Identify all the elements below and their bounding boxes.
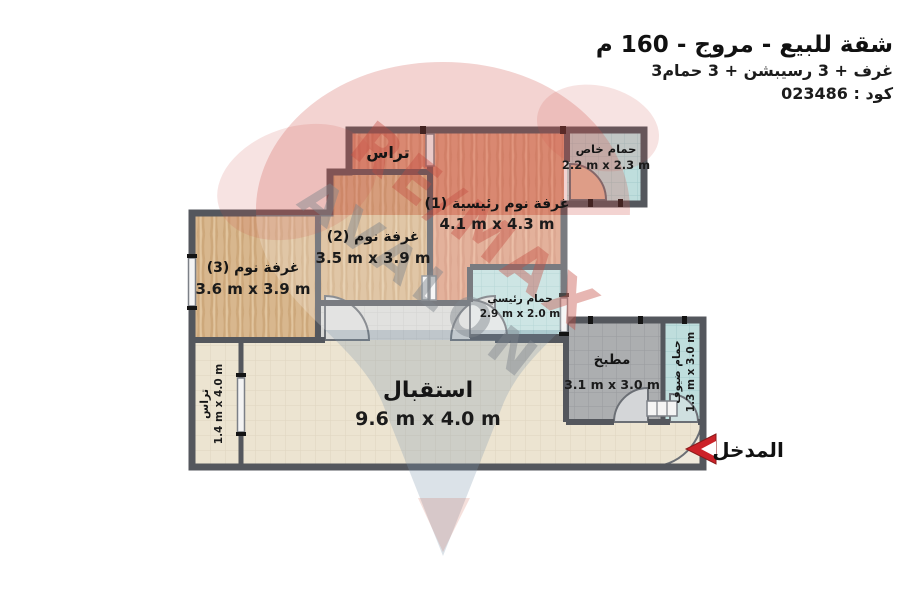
bedroom3-window xyxy=(189,258,196,306)
watermark-tip xyxy=(418,498,470,552)
bedroom3-label: غرفة نوم (3) xyxy=(207,260,300,276)
guest-bath-label: حمام ضيوف xyxy=(671,340,683,403)
master-bedroom-dims: 4.1 m x 4.3 m xyxy=(440,215,555,233)
master-bedroom-label: غرفة نوم رئيسية (1) xyxy=(425,196,570,212)
entrance-label: المدخل xyxy=(712,438,784,462)
kitchen-dims: 3.1 m x 3.0 m xyxy=(564,377,660,392)
header: شقة للبيع - مروج - 160 م 3غرف + 3 رسيبشن… xyxy=(596,32,894,103)
left-terrace-label: تراس xyxy=(198,389,211,419)
page-subtitle: 3غرف + 3 رسيبشن + 3 حمام xyxy=(651,61,893,80)
guest-bath-dims: 1.3 m x 3.0 m xyxy=(685,332,697,413)
main-bath-label: حمام رئيسي xyxy=(487,293,552,305)
floorplan-page: RE/MAX AVALON شقة للبيع - مروج - 160 م 3… xyxy=(0,0,900,599)
main-bath-dims: 2.9 m x 2.0 m xyxy=(480,308,561,320)
left-terrace-door-frame xyxy=(238,378,245,432)
listing-code: كود : 023486 xyxy=(781,84,894,103)
private-bath-label: حمام خاص xyxy=(576,142,637,156)
floorplan-canvas: RE/MAX AVALON شقة للبيع - مروج - 160 م 3… xyxy=(0,0,900,599)
left-terrace-dims: 1.4 m x 4.0 m xyxy=(213,364,225,445)
private-bath-dims: 2.2 m x 2.3 m xyxy=(562,158,650,172)
bedroom3-dims: 3.6 m x 3.9 m xyxy=(196,280,311,298)
bedroom2-label: غرفة نوم (2) xyxy=(327,229,420,245)
kitchen-label: مطبخ xyxy=(594,352,631,368)
page-title: شقة للبيع - مروج - 160 م xyxy=(596,32,893,58)
terrace-top-label: تراس xyxy=(366,143,410,162)
bedroom2-dims: 3.5 m x 3.9 m xyxy=(316,249,431,267)
reception-dims: 9.6 m x 4.0 m xyxy=(355,408,501,430)
reception-label: استقبال xyxy=(383,378,473,403)
